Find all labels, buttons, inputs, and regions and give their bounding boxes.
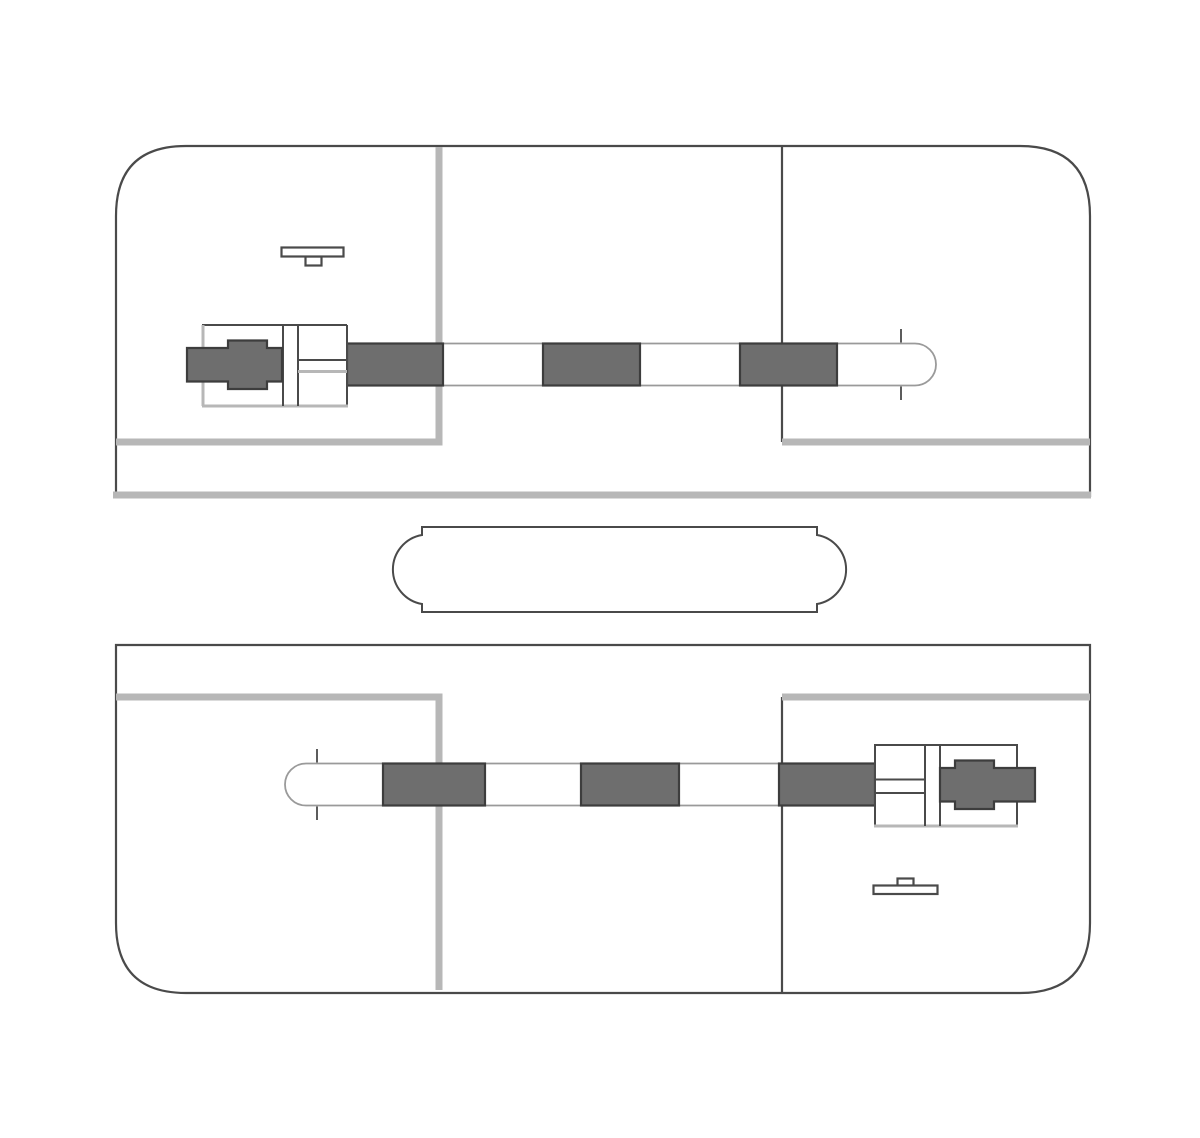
median-island xyxy=(393,527,846,612)
lower-sign-bar xyxy=(874,886,938,895)
lower-barrier-stripe-3 xyxy=(779,764,875,806)
lower-gate-motor xyxy=(940,761,1035,810)
upper-gate-motor xyxy=(187,341,282,390)
lower-barrier-stripe-2 xyxy=(581,764,679,806)
lower-barrier-stripe-1 xyxy=(383,764,485,806)
level-crossing-diagram xyxy=(0,0,1200,1138)
upper-barrier-stripe-2 xyxy=(543,344,640,386)
upper-barrier-stripe-3 xyxy=(740,344,837,386)
upper-barrier-stripe-1 xyxy=(347,344,443,386)
diagram-canvas xyxy=(0,0,1200,1138)
upper-sign-bar xyxy=(282,248,344,257)
upper-sign-post xyxy=(306,257,322,266)
